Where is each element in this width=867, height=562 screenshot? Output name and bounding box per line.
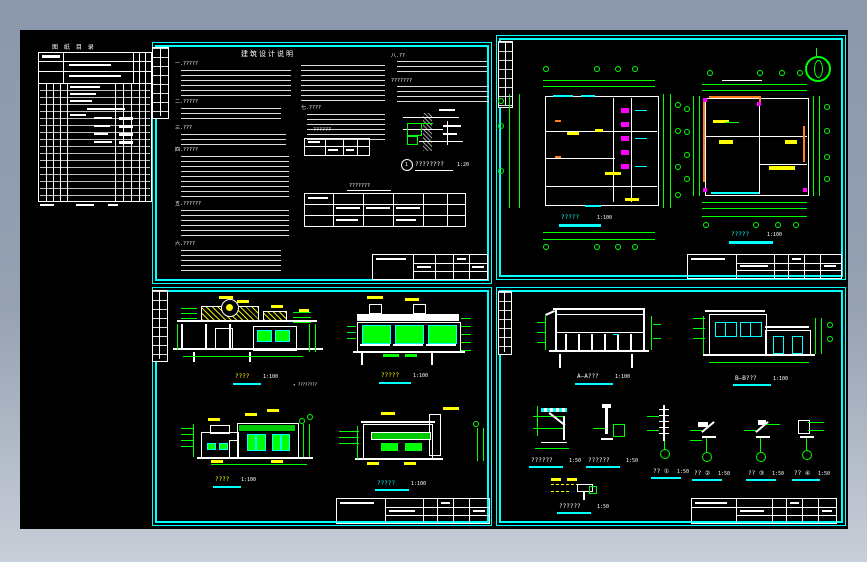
title-block-text (790, 502, 799, 504)
dim-line (709, 362, 809, 363)
grid-line (357, 139, 358, 155)
axis-bubble (757, 70, 763, 76)
grid-line (453, 255, 454, 279)
detail-ring (802, 450, 812, 460)
dim-line (181, 308, 197, 309)
grid-line (159, 291, 160, 359)
dim-line (543, 86, 655, 87)
wall-detail-drawing (399, 109, 465, 157)
cell-bar (119, 125, 133, 128)
dim-line (653, 324, 661, 325)
dim-line (703, 316, 704, 354)
window (272, 434, 290, 451)
corner-mark (703, 188, 707, 192)
gate-opening (215, 328, 233, 350)
window (247, 434, 266, 451)
notes-subheading: ??????? (391, 78, 412, 84)
detail-ring (702, 452, 712, 462)
detail-drawing (592, 400, 632, 450)
dim-line (808, 430, 824, 431)
dim-line (653, 338, 661, 339)
roof-line (361, 421, 435, 423)
dim-line (347, 326, 356, 327)
detail-green-box (613, 424, 625, 437)
ground-line (703, 354, 815, 356)
caption-underline (233, 383, 261, 385)
floor-line (555, 332, 643, 333)
notes-heading: 六.???? (175, 241, 195, 247)
sheet-elevations: ???? 1:100 + ???????? ????? 1:100 (152, 287, 492, 526)
caption-underline (415, 170, 453, 171)
caption-underline (213, 486, 241, 488)
title-block (687, 254, 842, 279)
notes-title: 建筑设计说明 (241, 49, 295, 59)
facade (363, 424, 433, 460)
dim-line (193, 424, 194, 457)
det4-caption: ?? ② (694, 471, 710, 477)
det7-caption: ?????? (559, 504, 581, 510)
dim-line (339, 443, 359, 444)
dim-line (309, 424, 310, 457)
cell-text (396, 219, 416, 221)
roof-line (555, 314, 643, 315)
detail-block (698, 422, 708, 427)
cell-text (346, 149, 354, 151)
grid-line (504, 292, 505, 352)
secA-scale: 1:100 (615, 375, 630, 380)
window-mullion (280, 435, 282, 450)
footing-mark (193, 352, 195, 362)
grid-line (736, 263, 841, 264)
notes-heading: 二.????? (175, 99, 198, 105)
dim-line (647, 416, 659, 417)
axis-bubble (824, 176, 830, 182)
title-block-text (695, 502, 727, 504)
dim-line (537, 342, 545, 343)
detail-ring (756, 452, 766, 462)
dim-line (303, 424, 304, 457)
detail-green-box (407, 136, 418, 145)
column (591, 334, 593, 350)
dim-line (339, 437, 359, 438)
detail-green-box (589, 486, 597, 494)
grid-line (385, 515, 489, 516)
cell-text (69, 64, 111, 66)
hanger-mark (631, 354, 633, 368)
detail-line (583, 492, 585, 500)
notes-textlines (301, 65, 385, 103)
dim-text (551, 478, 561, 481)
signature-strip (498, 291, 512, 355)
det6-caption: ?? ④ (794, 471, 810, 477)
cell-text (42, 55, 60, 58)
cell-text (94, 133, 108, 135)
det1-scale: 1:50 (569, 459, 581, 464)
cell-text (308, 141, 320, 143)
axis-bubble (543, 244, 549, 250)
dim-line (519, 94, 520, 208)
fixture-line (635, 138, 647, 139)
detail-line (702, 436, 716, 438)
detail-drawing (690, 416, 730, 466)
room-label (605, 172, 621, 175)
leader-dashed (551, 484, 577, 485)
footer-text (76, 204, 94, 206)
det4-scale: 1:50 (718, 472, 730, 477)
cell-bar (119, 141, 133, 144)
grid-line (786, 499, 787, 523)
axis-bubble (793, 222, 799, 228)
cell-bar (119, 133, 133, 136)
roof-box (369, 304, 382, 314)
dim-text (245, 413, 257, 416)
drawing-list-grid (38, 52, 152, 202)
dim-text (381, 412, 395, 415)
wall-highlight (709, 96, 759, 98)
ladder-rail (663, 405, 665, 441)
title-block (691, 498, 837, 524)
caption-underline (529, 466, 563, 468)
notes-textlines (181, 250, 281, 271)
det2-caption: ?????? (588, 458, 610, 464)
dim-line (535, 448, 569, 449)
dim-line (293, 317, 311, 318)
dim-line (699, 96, 700, 196)
grid-line (343, 139, 344, 155)
dim-text (367, 462, 379, 465)
grid-line (820, 255, 821, 278)
dim-line (537, 332, 545, 333)
cad-canvas: 图 纸 目 录 (20, 30, 848, 529)
room-label (719, 140, 733, 144)
window (740, 322, 762, 337)
fixture (621, 150, 629, 155)
gate-ornament (221, 299, 239, 317)
window-sill (393, 344, 423, 346)
leader-green (725, 122, 739, 123)
north-arrow-stem (816, 48, 817, 56)
corner-mark (757, 102, 761, 106)
drawing-list-title: 图 纸 目 录 (52, 42, 96, 51)
axis-bubble (824, 128, 830, 134)
cell-text (336, 219, 358, 221)
sill-line (711, 192, 759, 194)
sheet-design-notes: 建筑设计说明 一.????? 二.????? 三.??? 四.????? 五.?… (152, 42, 492, 284)
title-block-text (389, 510, 415, 512)
dim-line (760, 438, 761, 452)
window (715, 322, 737, 337)
dim-line (357, 426, 358, 459)
grid-line (774, 255, 775, 278)
coping-bar (541, 408, 567, 412)
notes-heading: 七.???? (301, 105, 321, 111)
wall-line (759, 164, 807, 165)
secB-caption: B—B??? (735, 376, 757, 382)
axis-bubble (307, 414, 313, 420)
column (630, 334, 632, 350)
title-block-text (740, 265, 768, 267)
detail-block (758, 420, 766, 425)
ground-line (353, 351, 465, 353)
dim-text (567, 478, 577, 481)
title-block-text (457, 258, 466, 260)
grid-line (818, 499, 819, 523)
axis-bubble (675, 128, 681, 134)
dim-line (545, 316, 546, 350)
fixture (621, 136, 629, 141)
caption-underline (375, 489, 409, 491)
dim-line (309, 324, 310, 352)
detail-green-line (407, 123, 433, 124)
dim-line (806, 438, 807, 450)
notes-heading: 三.??? (175, 125, 192, 131)
dim-line (533, 428, 563, 429)
plan1-walls (545, 96, 659, 206)
det3-caption: ?? ① (653, 469, 669, 475)
title-block (372, 254, 488, 280)
post (181, 324, 183, 348)
dim-line (663, 94, 664, 208)
grid-line (325, 139, 326, 155)
dim-line (813, 96, 814, 196)
window (381, 443, 398, 451)
cell-bar (119, 117, 133, 120)
axis-bubble (299, 418, 305, 424)
dim-line (821, 318, 822, 354)
hanger-mark (559, 354, 561, 368)
dim-line (347, 332, 356, 333)
detail-line (601, 438, 613, 440)
grid-line (736, 255, 737, 278)
title-block-text (376, 258, 406, 260)
cell-text (70, 114, 86, 116)
detail-caption: ???????? (415, 162, 444, 168)
detail-green-box (407, 123, 422, 136)
notes-textlines (181, 210, 289, 239)
right-block (765, 330, 811, 356)
dim-line (702, 208, 807, 209)
footing-mark (431, 353, 433, 365)
fixture (621, 122, 629, 127)
caption-underline (586, 466, 620, 468)
signature-strip (152, 290, 168, 362)
axis-bubble (543, 66, 549, 72)
detail-line (541, 442, 567, 443)
plan1-scale: 1:100 (597, 216, 612, 221)
cell-text (70, 93, 96, 95)
dim-line (819, 96, 820, 196)
dim-line (181, 313, 197, 314)
axis-bubble (473, 421, 479, 427)
notes-textlines (181, 70, 291, 97)
ladder-rung (659, 427, 669, 428)
detail-line (756, 436, 770, 438)
room-label (567, 132, 579, 135)
title-block-text (441, 502, 450, 504)
caption-underline (575, 383, 613, 385)
wall-highlight (803, 126, 805, 162)
dim-line (808, 422, 824, 423)
dim-line (664, 441, 665, 449)
grid-line (453, 499, 454, 523)
grid-line (145, 53, 146, 83)
window-sill (553, 95, 573, 97)
caption-underline (792, 479, 820, 481)
room-label (595, 129, 603, 132)
room-label (769, 166, 795, 170)
cell-text (94, 125, 110, 127)
door-mark (555, 120, 561, 122)
cell-text (366, 207, 390, 209)
plan2-walls (705, 98, 809, 196)
grid-line (385, 499, 386, 523)
ground-line (197, 457, 313, 459)
grid-line (469, 499, 470, 523)
door-mark (555, 156, 561, 158)
grid-line (469, 255, 470, 279)
dim-line (177, 324, 178, 350)
cell-text (328, 149, 338, 151)
axis-bubble (498, 168, 504, 174)
dim-line (509, 94, 510, 208)
wall-line (545, 158, 615, 159)
ground-line (549, 350, 649, 352)
detail-line (563, 416, 565, 440)
secB-scale: 1:100 (773, 377, 788, 382)
caption-underline (692, 479, 722, 481)
grid-line (363, 194, 364, 226)
cell-text (69, 75, 121, 77)
drawing-list-table: 图 纸 目 录 (38, 42, 150, 212)
title-block-text (472, 266, 484, 268)
axis-bubble (594, 66, 600, 72)
detail-drawing (645, 403, 681, 461)
window-sill (426, 344, 456, 346)
north-arrow-icon (805, 56, 831, 82)
window-mullion (725, 323, 726, 336)
ornament-center (226, 304, 233, 311)
fixture (621, 108, 629, 113)
title-block-text (417, 266, 431, 268)
north-needle (814, 60, 823, 78)
fixture (621, 164, 629, 169)
axis-bubble (594, 244, 600, 250)
dim-text (443, 407, 459, 410)
window (405, 443, 422, 451)
title-block-text (740, 510, 764, 512)
window (362, 325, 391, 344)
footing-mark (361, 353, 363, 365)
elevation-note: + ???????? (293, 382, 317, 388)
detail-scale: 1:20 (457, 163, 469, 168)
dim-line (706, 438, 707, 452)
cell-text (87, 108, 125, 110)
dim-line (483, 428, 484, 461)
dim-line (543, 80, 655, 81)
leader-dashed (551, 491, 571, 492)
elev1-scale: 1:100 (263, 375, 278, 380)
elev3-scale: 1:100 (241, 478, 256, 483)
caption-underline (347, 190, 391, 191)
grid-line (772, 499, 773, 523)
axis-bubble (684, 176, 690, 182)
grid-line (804, 255, 805, 278)
dim-line (181, 318, 197, 319)
axis-bubble (824, 104, 830, 110)
axis-bubble (615, 244, 621, 250)
grid-line (802, 499, 803, 523)
window (428, 325, 457, 344)
grid-line (413, 255, 414, 279)
elev1-caption: ???? (235, 374, 249, 380)
window-small (207, 443, 216, 450)
roof-line (765, 326, 809, 328)
grid-line (423, 194, 424, 226)
roof-line (553, 308, 645, 310)
grid-line (333, 194, 334, 226)
window (257, 330, 272, 342)
axis-bubble (632, 66, 638, 72)
dim-line (315, 324, 316, 352)
detail-note (443, 125, 461, 127)
dim-text (237, 300, 249, 303)
caption-underline (729, 241, 773, 244)
cell-text (308, 197, 328, 199)
det5-scale: 1:50 (772, 472, 784, 477)
elev4-caption: ????? (377, 481, 395, 487)
plan2-caption: ????? (731, 232, 749, 238)
detail-note (439, 109, 455, 111)
grid-line (63, 53, 64, 83)
dim-line (702, 202, 807, 203)
schedule-caption: ?????? (313, 127, 331, 133)
notes-textlines (181, 108, 281, 123)
grid-line (133, 53, 134, 83)
window (395, 325, 424, 344)
post (205, 324, 207, 348)
grid-line (305, 215, 465, 216)
elev2-caption: ????? (381, 373, 399, 379)
wall-line (759, 98, 760, 194)
footing-mark (249, 352, 251, 362)
wall-highlight (703, 102, 705, 182)
title-block-text (792, 258, 801, 260)
fixture-line (635, 110, 647, 111)
dim-line (461, 334, 471, 335)
grid-line (736, 270, 841, 271)
schedule-table (304, 138, 370, 156)
dim-line (533, 416, 563, 417)
dim-line (690, 430, 702, 431)
detail-drawing (549, 476, 599, 502)
axis-bubble (675, 102, 681, 108)
dim-line (543, 232, 655, 233)
dim-line (537, 406, 538, 436)
detail-drawing (533, 398, 577, 454)
elev4-scale: 1:100 (411, 482, 426, 487)
grid-line (413, 263, 487, 264)
dim-text (404, 462, 416, 465)
dim-line (744, 430, 756, 431)
fixture-line (635, 166, 647, 167)
ground-line (173, 348, 323, 350)
parapet-band (357, 314, 459, 321)
axis-bubble (675, 164, 681, 170)
dim-line (211, 464, 307, 465)
axis-bubble (498, 98, 504, 104)
footer-text (40, 204, 54, 206)
title-block-text (824, 265, 836, 267)
